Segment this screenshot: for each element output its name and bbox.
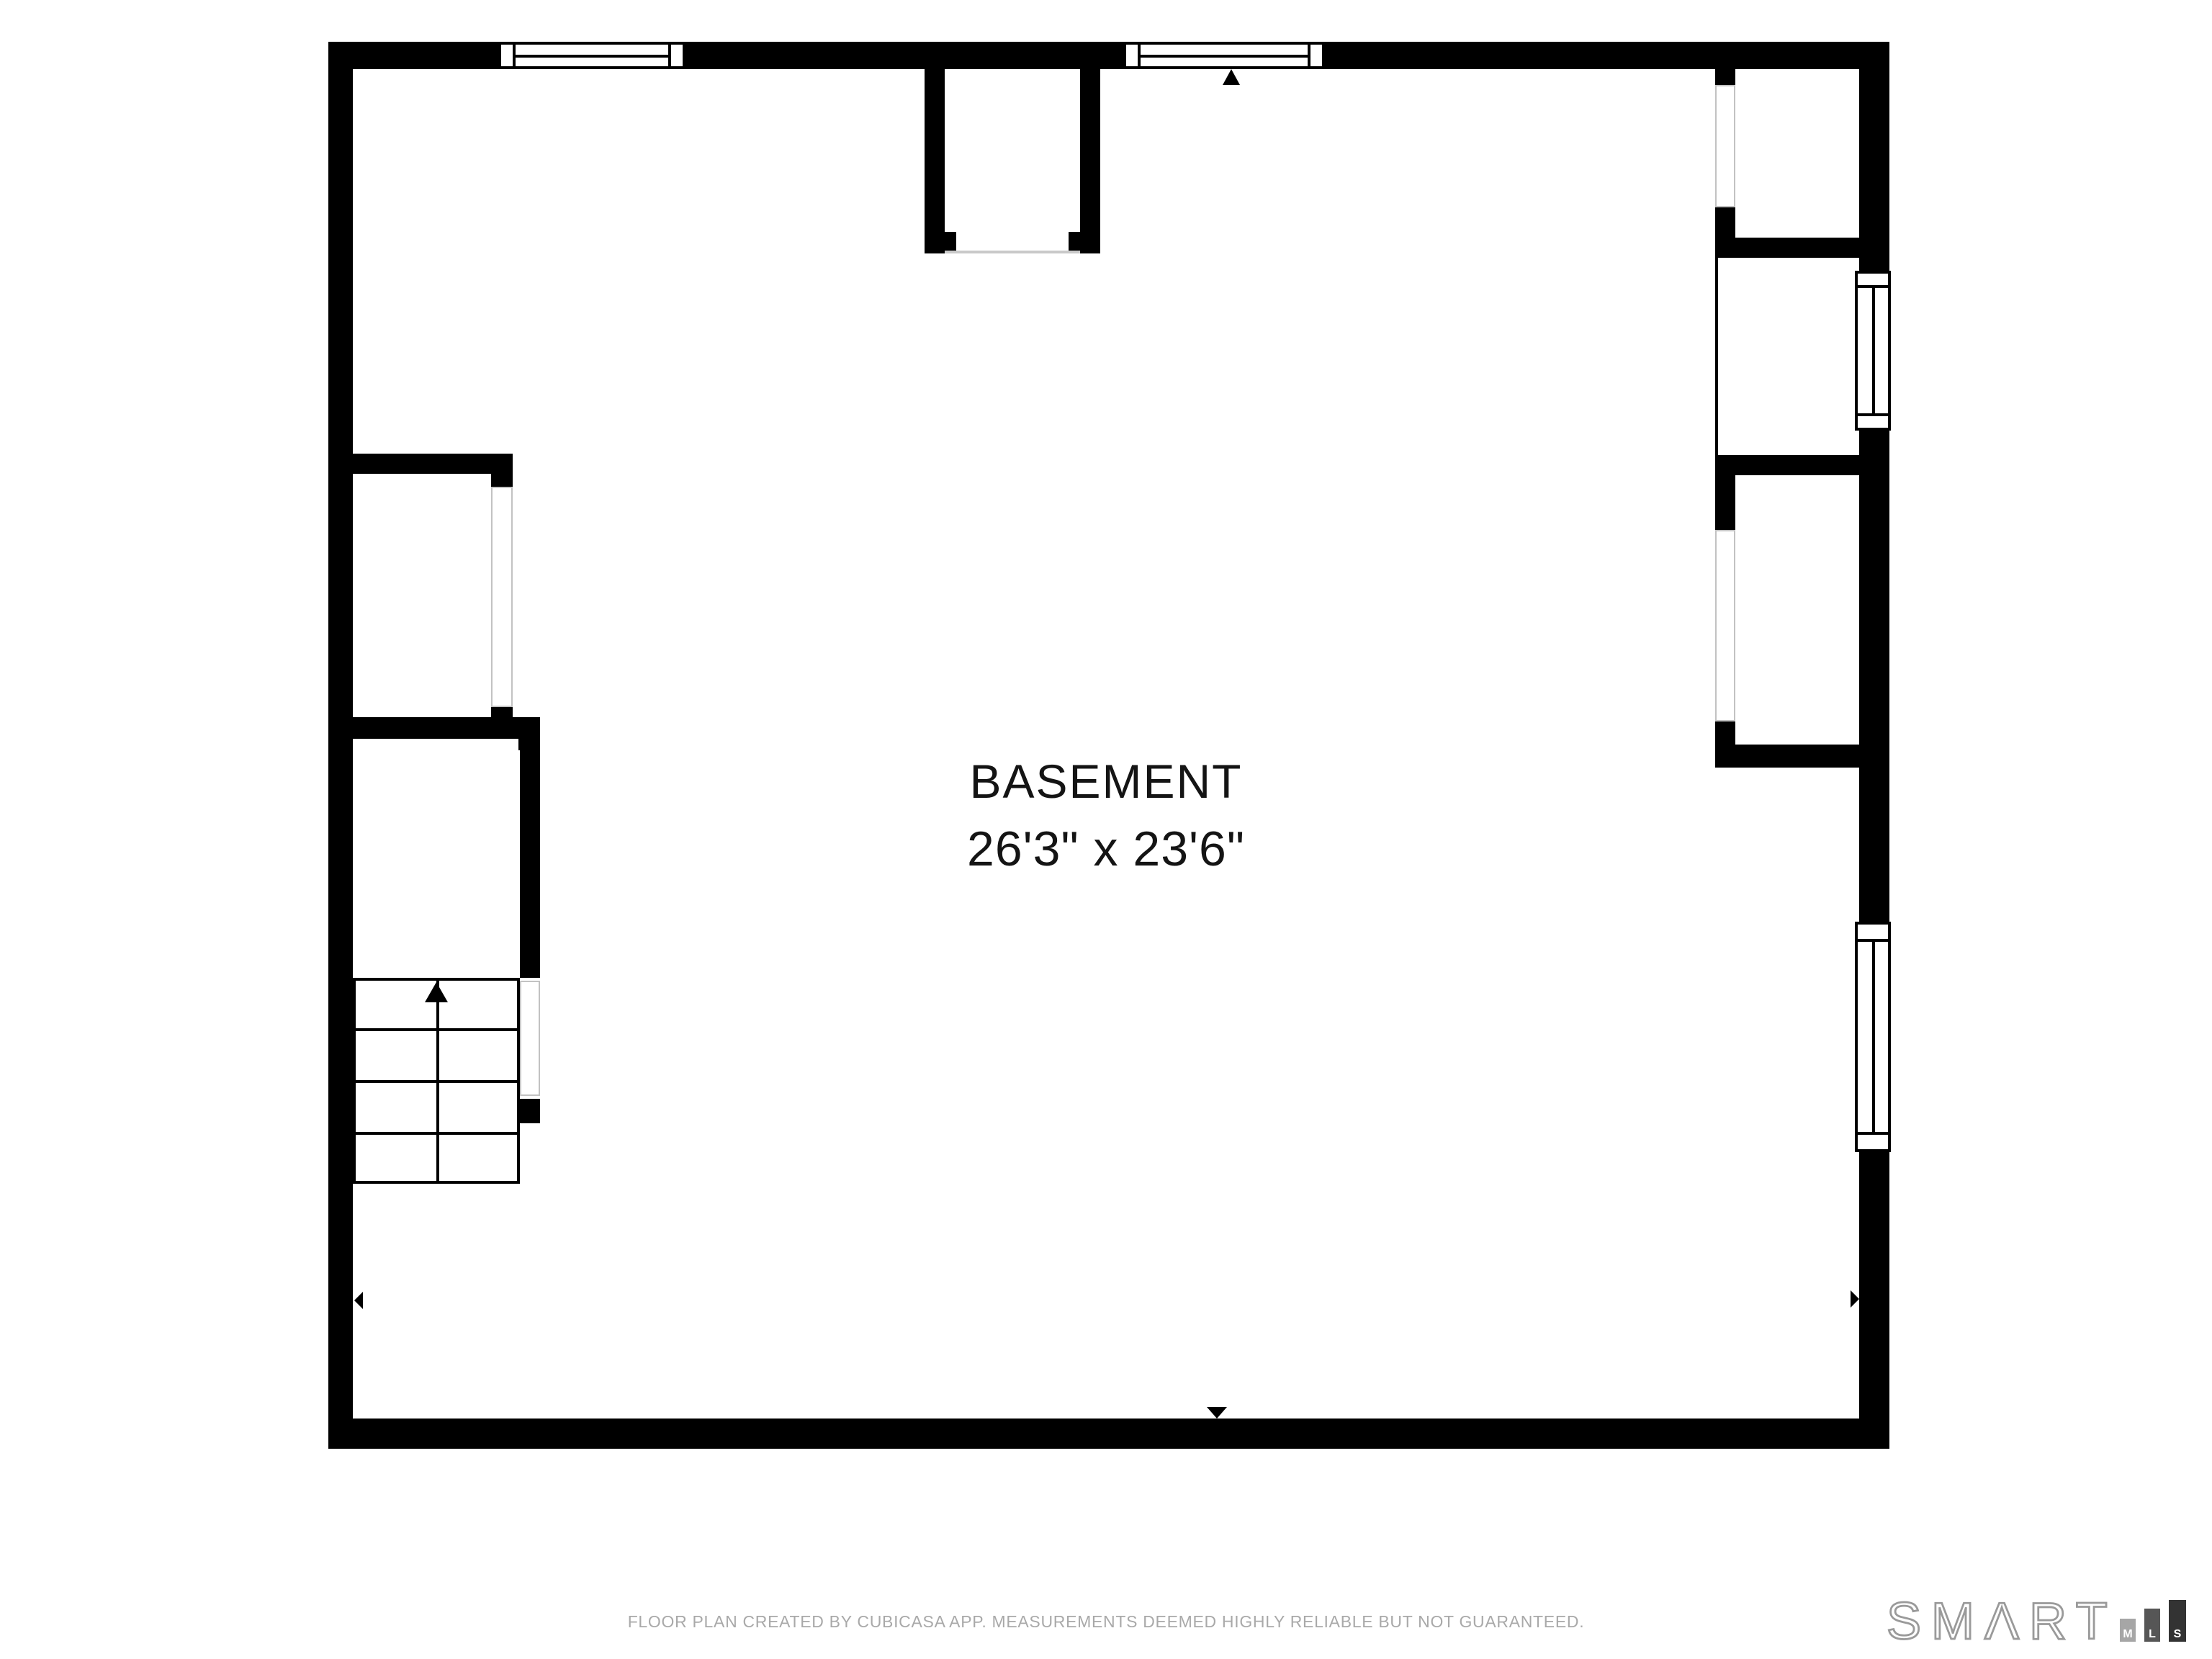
room-c-jamb-bottom	[1715, 721, 1735, 745]
niche-wall-east	[1080, 69, 1100, 253]
smartmls-logo: SMΛRT MLS	[1887, 1588, 2212, 1656]
floor-plan: BASEMENT 26'3" x 23'6" FLOOR PLAN CREATE…	[0, 0, 2212, 1659]
wall-bottom	[328, 1419, 1889, 1449]
room-label: BASEMENT	[0, 755, 2212, 809]
room-dimensions: 26'3" x 23'6"	[0, 822, 2212, 878]
room-b-boundary-line	[1715, 258, 1718, 455]
room-c-door-opening	[1715, 530, 1735, 721]
mls-bars: MLS	[2120, 1600, 2206, 1642]
room-label-block: BASEMENT 26'3" x 23'6"	[0, 755, 2212, 878]
closet-door-jamb-bottom	[491, 707, 513, 717]
room-a-jamb-top	[1715, 69, 1735, 85]
window-right-upper	[1855, 271, 1891, 431]
room-c-jamb-top	[1715, 475, 1735, 530]
mls-bar-s: S	[2169, 1600, 2186, 1642]
niche-wall-west	[925, 69, 945, 253]
closet-door-jamb-top	[491, 454, 513, 487]
window-right-lower	[1855, 922, 1891, 1152]
window-top-west	[498, 42, 685, 69]
room-a-jamb-bottom	[1715, 207, 1735, 238]
stair-door-opening	[520, 981, 540, 1096]
niche-boundary-line	[945, 251, 1080, 253]
mls-bar-l: L	[2144, 1609, 2160, 1642]
mls-bar-m: M	[2120, 1619, 2136, 1642]
arrow-up-marker	[1223, 69, 1240, 85]
arrow-left-marker	[354, 1292, 363, 1309]
closet-wall-corner	[518, 739, 540, 750]
room-a-wall-bottom	[1715, 238, 1859, 258]
smartmls-logo-text: SMΛRT	[1887, 1588, 2118, 1655]
window-top-east	[1123, 42, 1325, 69]
stair-center-line	[436, 981, 439, 1181]
closet-door-opening	[491, 487, 513, 707]
disclaimer-text: FLOOR PLAN CREATED BY CUBICASA APP. MEAS…	[0, 1614, 2212, 1632]
closet-wall-top	[353, 454, 491, 474]
closet-wall-bottom	[353, 717, 540, 739]
wall-left	[328, 42, 353, 1449]
staircase	[353, 978, 520, 1184]
room-b-wall-bottom	[1715, 455, 1859, 475]
screenshot-canvas: BASEMENT 26'3" x 23'6" FLOOR PLAN CREATE…	[0, 0, 2212, 1659]
stair-wall-lower	[520, 1099, 540, 1123]
stairs-up-arrow	[425, 982, 448, 1002]
arrow-right-marker	[1851, 1290, 1859, 1308]
wall-right	[1859, 42, 1889, 1449]
room-a-door-opening	[1715, 85, 1735, 207]
arrow-down-marker	[1207, 1407, 1227, 1419]
